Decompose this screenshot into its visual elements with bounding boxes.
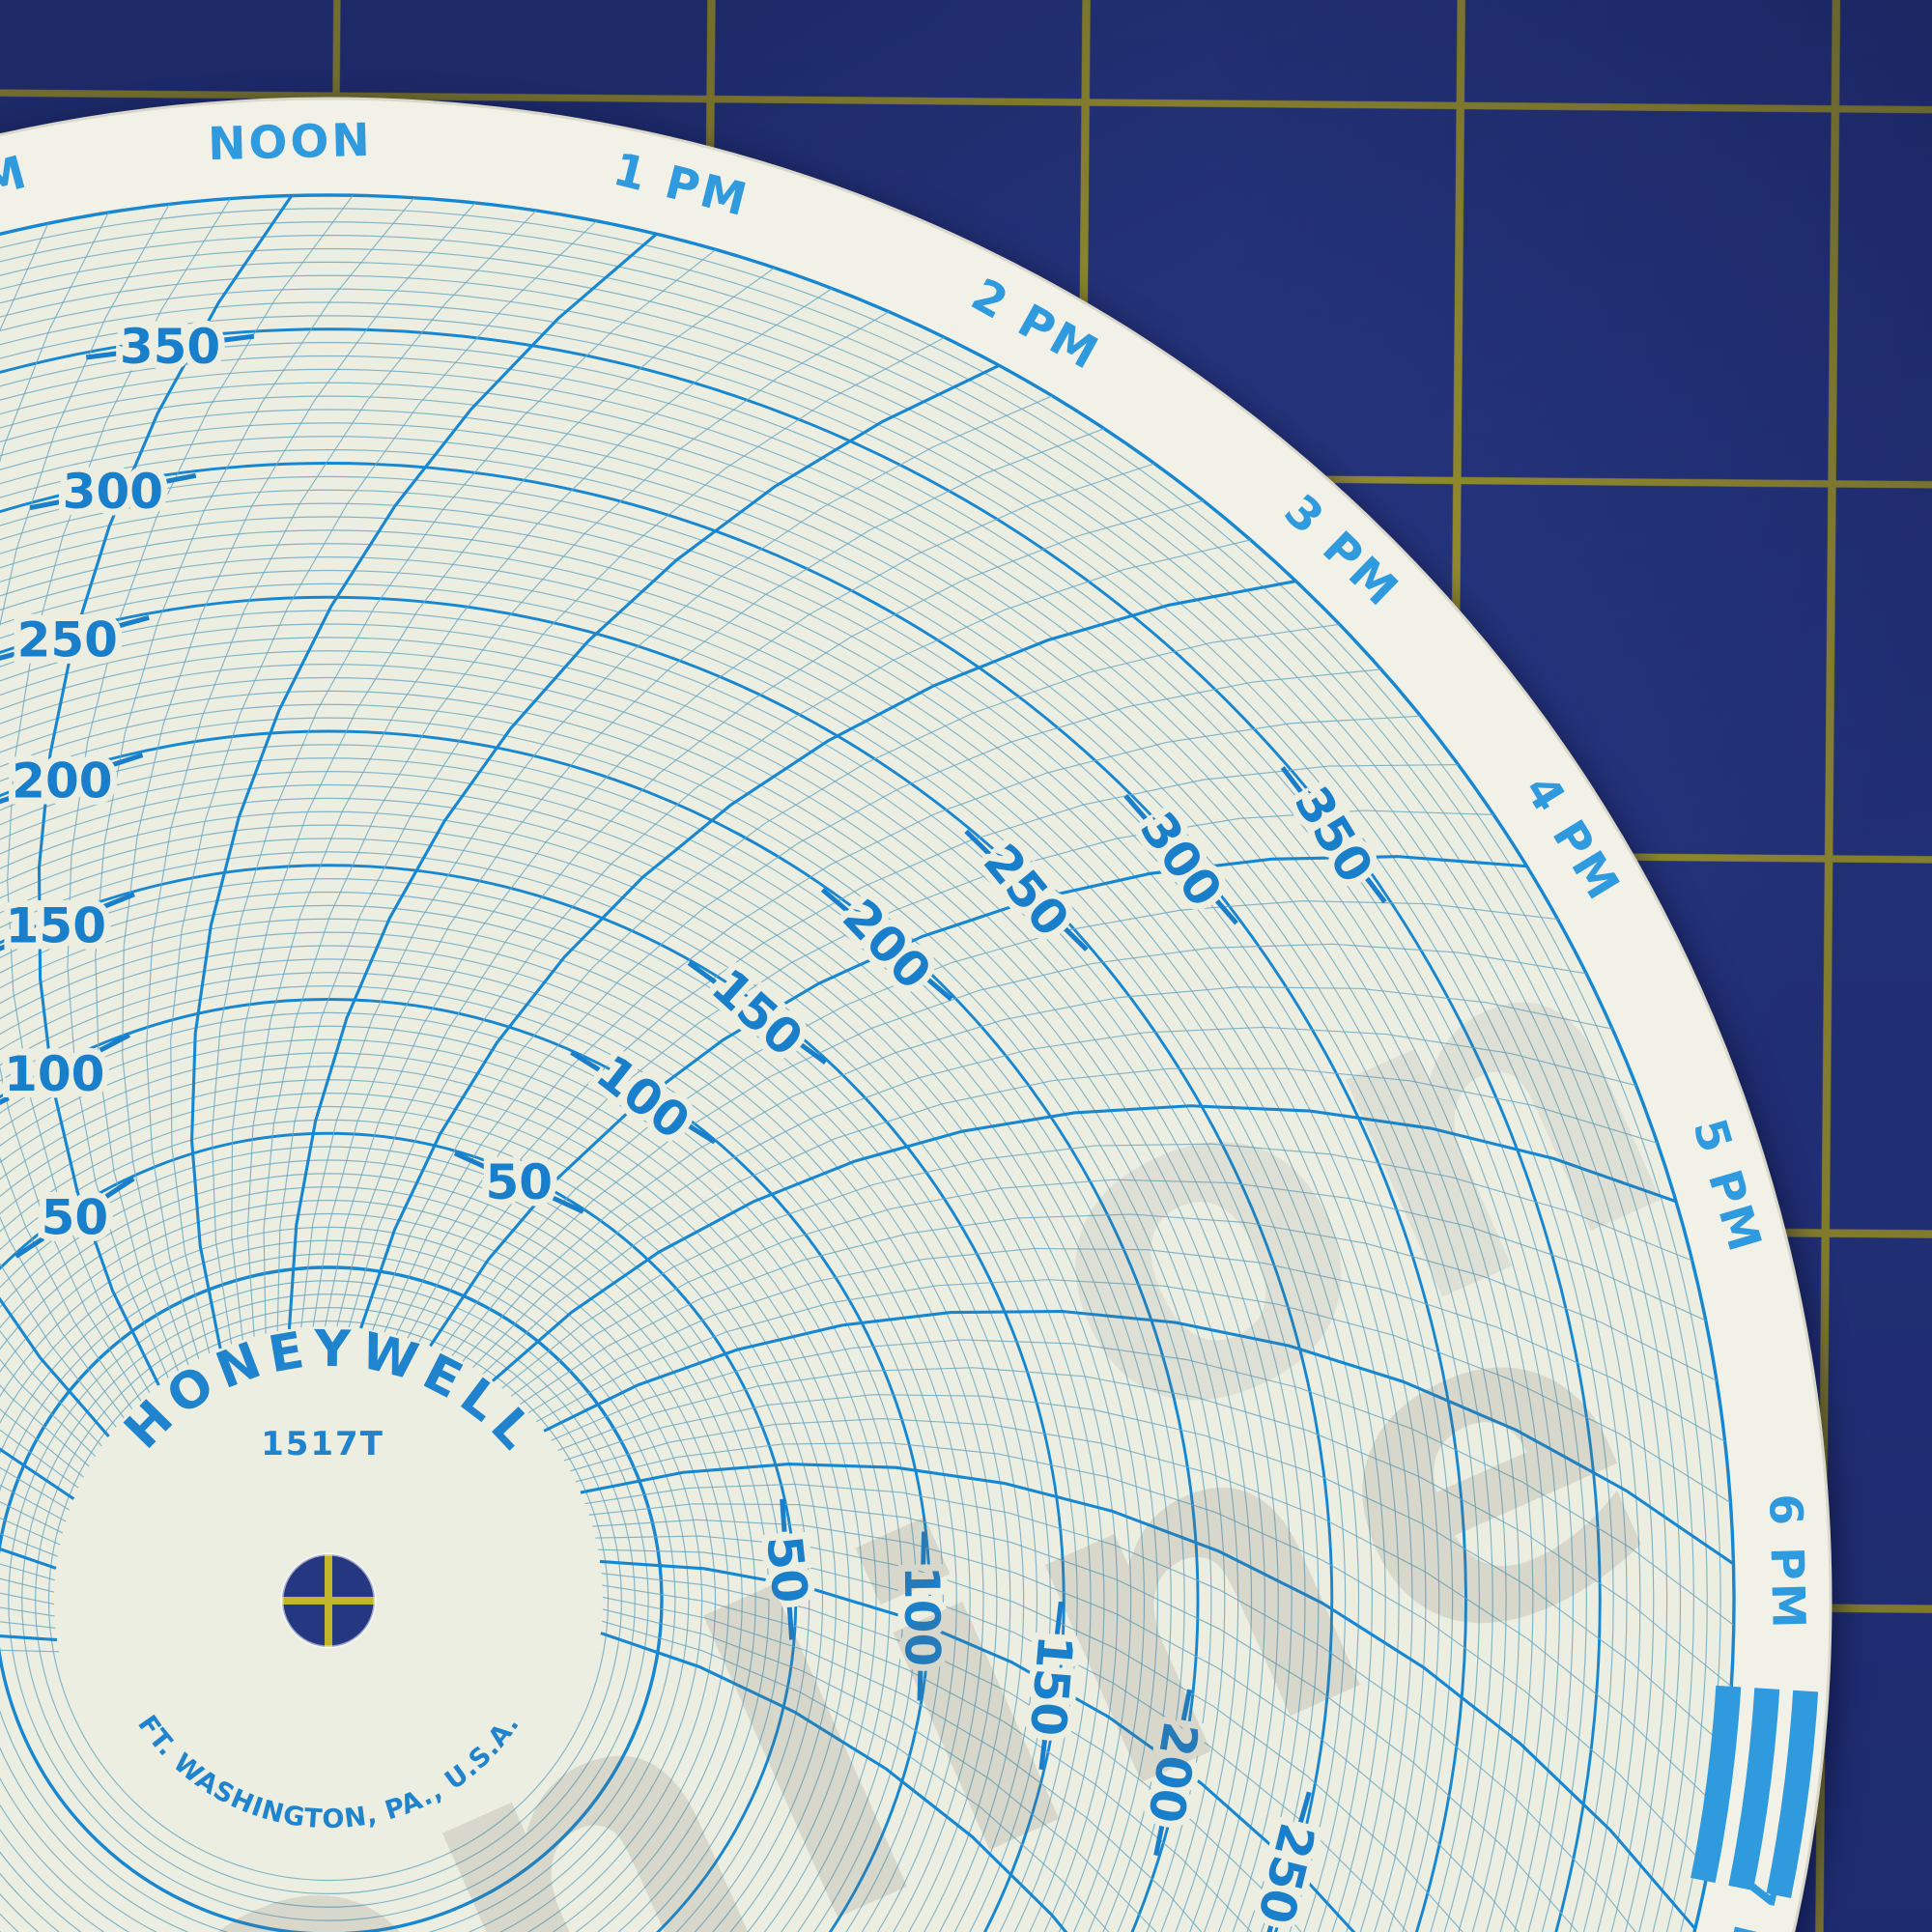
chart-grid-area [0,195,1734,1932]
scale-label: 350 [120,319,220,375]
scene: 5010015020025030035050100150200250300350… [0,0,1932,1932]
scale-label: 100 [894,1566,951,1667]
scale-label: 50 [42,1189,109,1245]
chart-paper-disc: 5010015020025030035050100150200250300350… [0,0,1932,1932]
center-hole [282,1554,375,1647]
scale-label: 150 [1019,1633,1083,1738]
scale-label: 300 [63,464,163,520]
scale-label: 50 [755,1533,818,1605]
scale-label: 150 [6,898,106,954]
scale-label-dash [782,1499,784,1532]
scale-label-dash [920,1668,921,1701]
scale-label: 250 [17,611,118,668]
model-number: 1517T [261,1425,384,1463]
scale-label: 200 [12,753,112,810]
scale-label-dash [923,1532,924,1565]
scale-label: 100 [4,1046,104,1102]
time-label: NOON [207,114,373,171]
scale-label: 50 [485,1154,553,1210]
scale-label-dash [789,1607,791,1640]
time-label: 6 PM [1758,1493,1815,1633]
